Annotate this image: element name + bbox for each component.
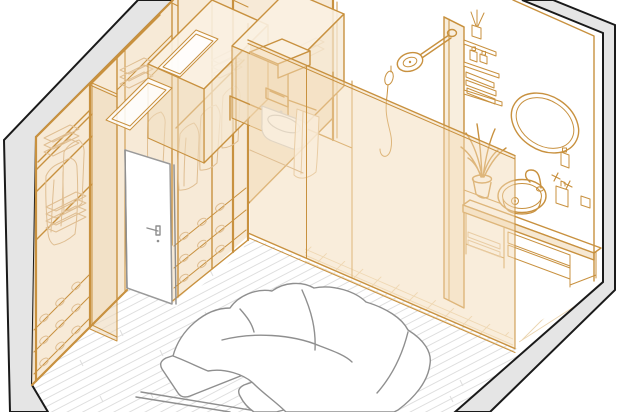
room-illustration: Isometric cutaway illustration of a bedr… [0,0,618,412]
isometric-room-drawing: Isometric cutaway illustration of a bedr… [0,0,618,412]
closet-door [125,150,176,304]
